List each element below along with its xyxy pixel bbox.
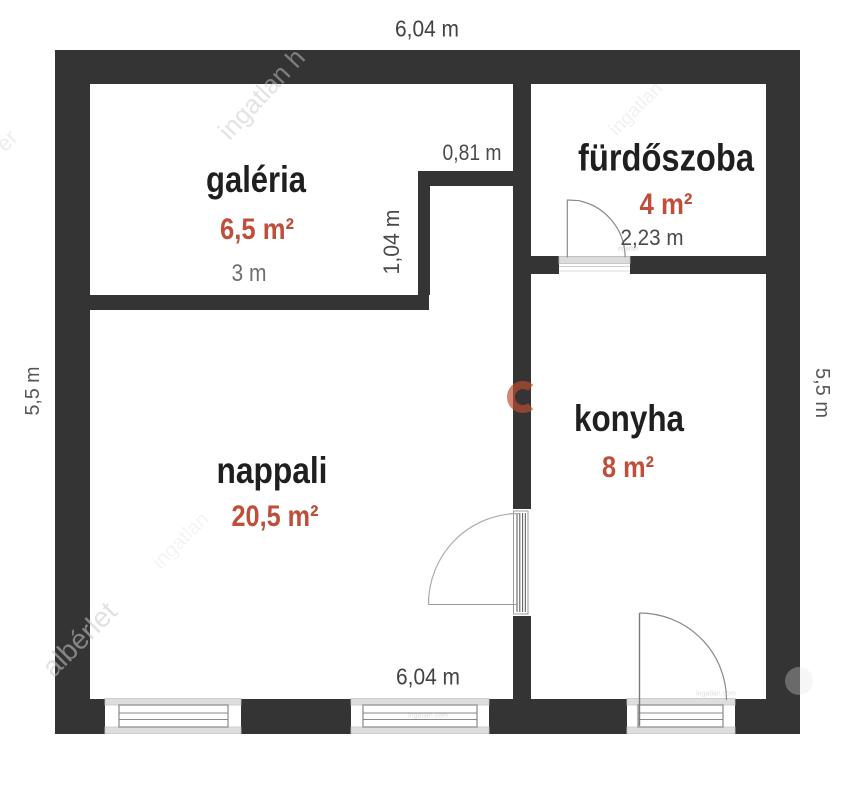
svg-text:galéria: galéria [206,159,306,200]
svg-text:20,5 m²: 20,5 m² [232,500,319,533]
svg-text:8 m²: 8 m² [602,451,654,484]
svg-text:ingatlan: ingatlan [617,247,638,253]
svg-text:6,04 m: 6,04 m [395,16,459,42]
svg-text:ingatlan.com: ingatlan.com [408,713,448,720]
svg-text:6,04 m: 6,04 m [396,664,460,690]
svg-text:5,5 m: 5,5 m [22,367,44,416]
svg-text:konyha: konyha [574,398,684,439]
svg-text:3 m: 3 m [232,260,267,287]
svg-text:1,04 m: 1,04 m [379,210,404,275]
svg-text:0,81 m: 0,81 m [443,140,502,165]
svg-text:5,5 m: 5,5 m [811,368,833,418]
svg-text:4 m²: 4 m² [640,188,693,221]
svg-text:fürdőszoba: fürdőszoba [578,138,755,180]
svg-text:nappali: nappali [217,450,328,491]
svg-text:6,5 m²: 6,5 m² [220,213,294,246]
svg-text:ingatlan.com: ingatlan.com [696,691,736,698]
